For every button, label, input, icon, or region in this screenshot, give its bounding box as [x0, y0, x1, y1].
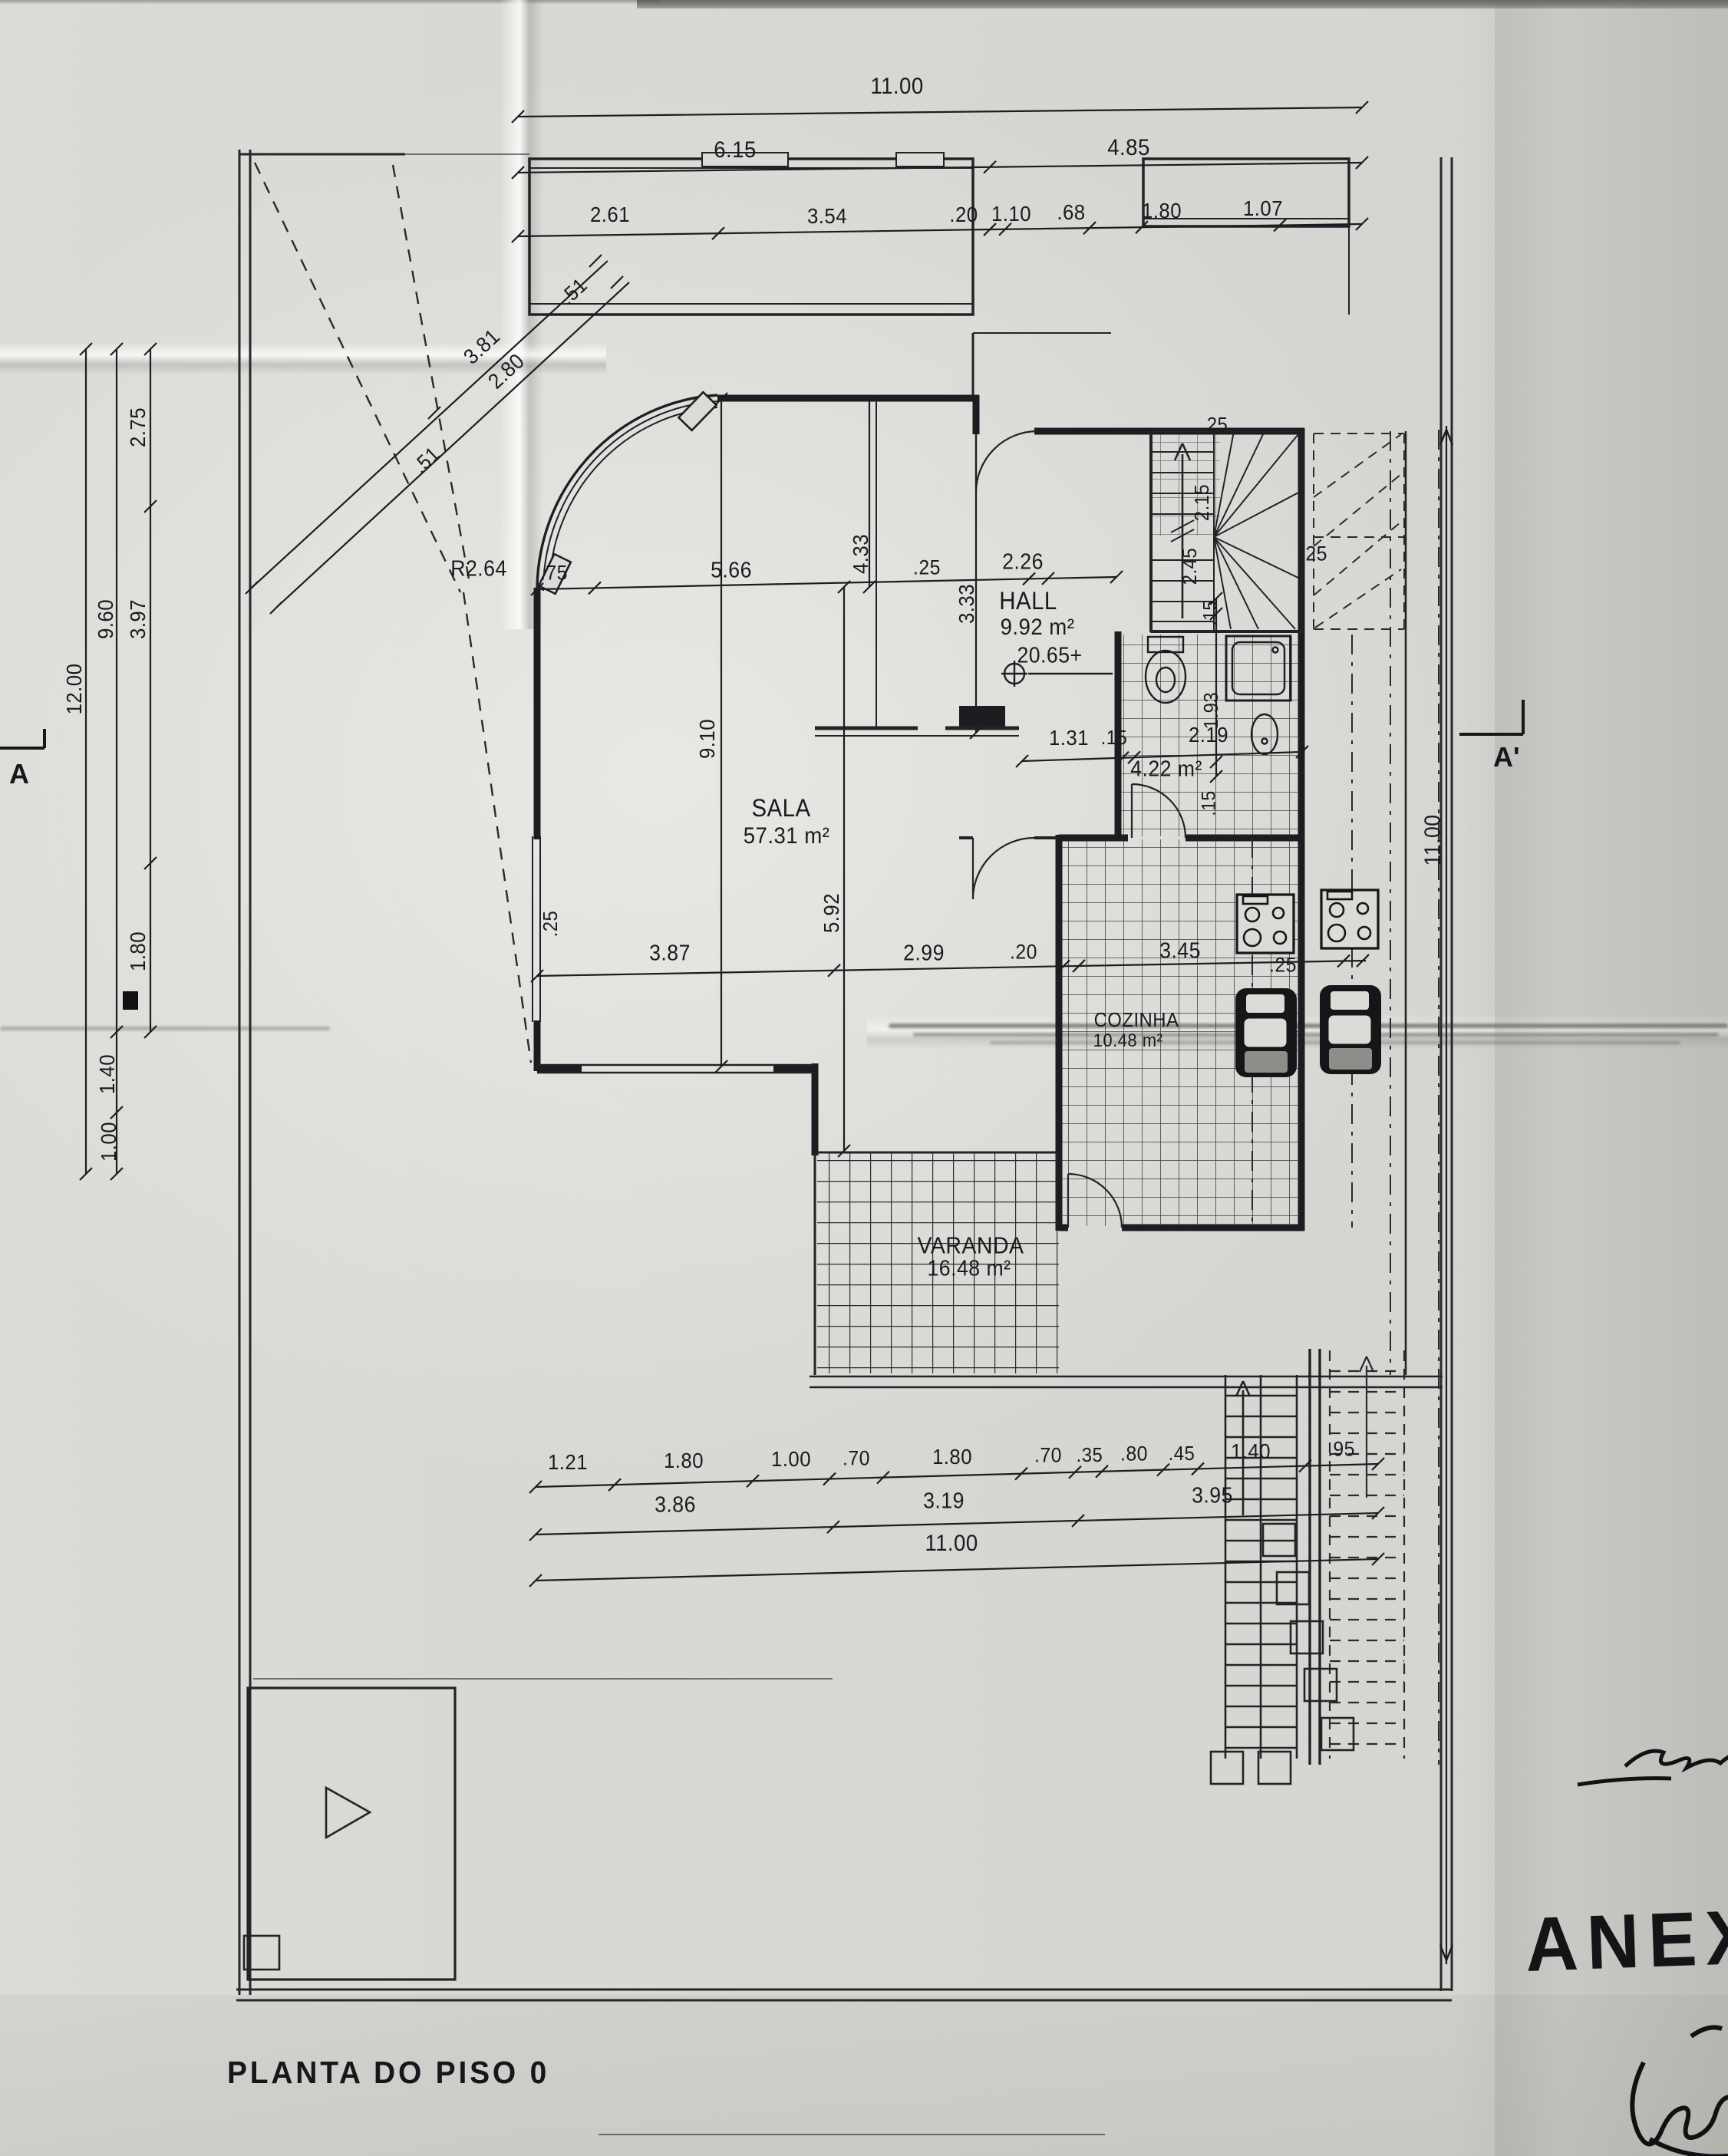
dim-label: 1.00	[98, 1122, 120, 1162]
dim-label: 11.00	[1423, 814, 1445, 865]
dim-label: .51	[557, 275, 592, 308]
dim-label: 1.40	[1231, 1441, 1271, 1462]
dim-label: 1.80	[1142, 200, 1182, 222]
dim-label: 1.31	[1049, 727, 1089, 749]
dim-label: 3.95	[1192, 1485, 1233, 1508]
dim-label: 3.87	[649, 943, 691, 965]
dim-label: .35	[1077, 1445, 1103, 1465]
dim-label: 1.93	[1201, 692, 1221, 729]
dim-label: .68	[1057, 202, 1085, 223]
dim-label: 3.86	[655, 1495, 696, 1517]
dim-label: 1.00	[771, 1449, 811, 1470]
dim-label: 5.92	[821, 893, 843, 933]
room-area-wc: 4.22 m²	[1130, 759, 1202, 781]
floor-plan-scan: 11.006.154.852.613.54.201.10.681.801.072…	[0, 0, 1728, 2156]
dim-label: 1.10	[991, 203, 1031, 225]
dim-label: 2.45	[1179, 548, 1199, 585]
dim-label: .20	[1010, 942, 1037, 963]
room-area-sala: 57.31 m²	[744, 825, 830, 848]
room-area-cozinha: 10.48 m²	[1093, 1032, 1163, 1050]
dim-label: 1.80	[932, 1446, 972, 1468]
dim-label: 1.21	[548, 1452, 588, 1473]
room-label-hall: HALL	[999, 588, 1057, 613]
dim-label: .51	[410, 443, 444, 477]
dim-label: .20	[949, 204, 978, 226]
dim-label: 6.15	[714, 139, 757, 162]
dim-label: .15	[1200, 790, 1219, 816]
dim-label: .70	[843, 1449, 870, 1469]
dim-label: 1.80	[127, 931, 149, 971]
dim-label: 2.61	[590, 204, 630, 226]
dim-label: .25	[1269, 955, 1297, 976]
room-label-sala: SALA	[751, 796, 810, 820]
level-mark-label: 20.65+	[1017, 645, 1082, 668]
room-area-hall: 9.92 m²	[1001, 616, 1075, 639]
dim-label: 2.80	[484, 350, 528, 393]
dim-label: 2.15	[1192, 484, 1212, 521]
dim-label: 9.60	[95, 599, 117, 639]
dim-label: R2.64	[450, 559, 506, 581]
dim-label: .45	[1169, 1443, 1195, 1463]
dim-label: 12.00	[64, 664, 85, 715]
dim-label: 1.07	[1243, 198, 1283, 219]
room-label-cozinha: COZINHA	[1094, 1010, 1179, 1030]
dim-label: .70	[1034, 1446, 1062, 1466]
annex-handwritten-label: ANEXO	[1524, 1891, 1728, 1990]
dim-label: 11.00	[925, 1532, 978, 1555]
dim-label: .75	[540, 563, 568, 584]
dim-label: .25	[540, 911, 560, 938]
dim-label: .25	[1300, 544, 1327, 565]
dim-label: 3.19	[923, 1491, 965, 1513]
dim-label: 3.33	[956, 584, 978, 624]
dim-label: 1.80	[664, 1450, 704, 1472]
dim-label: 4.33	[850, 534, 872, 574]
annotation-layer: 11.006.154.852.613.54.201.10.681.801.072…	[0, 0, 1728, 2156]
dim-label: .15	[1202, 600, 1221, 625]
plan-title: PLANTA DO PISO 0	[227, 2055, 549, 2091]
dim-label: 2.99	[903, 943, 945, 965]
dim-label: 2.75	[127, 407, 149, 447]
dim-label: 1.40	[97, 1054, 118, 1094]
dim-label: .25	[913, 558, 941, 579]
dim-label: 9.10	[697, 719, 718, 759]
room-area-varanda: 16.48 m²	[928, 1258, 1011, 1281]
dim-label: 2.26	[1002, 552, 1044, 574]
dim-label: 11.00	[870, 75, 923, 98]
dim-label: .80	[1120, 1444, 1148, 1465]
dim-label: 3.54	[807, 206, 847, 227]
dim-label: 3.45	[1159, 941, 1201, 963]
dim-label: .95	[1327, 1439, 1355, 1460]
dim-label: .15	[1101, 727, 1128, 747]
room-label-varanda: VARANDA	[918, 1234, 1024, 1258]
section-marker-a: A	[9, 758, 29, 790]
dim-label: 3.97	[127, 599, 149, 639]
dim-label: 5.66	[711, 560, 752, 582]
dim-label: .25	[1202, 414, 1228, 434]
section-marker-a-prime: A'	[1493, 741, 1520, 773]
dim-label: 4.85	[1107, 137, 1150, 160]
